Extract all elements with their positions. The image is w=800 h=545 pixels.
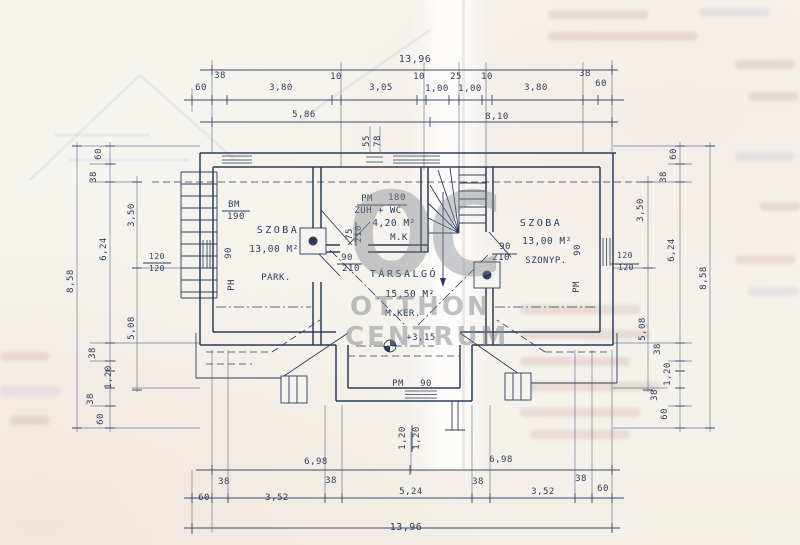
room-left-area: 13,00 M² bbox=[249, 244, 299, 255]
dim-label: 38 bbox=[88, 347, 98, 359]
dim-label: 60 bbox=[669, 148, 679, 160]
dim-label: 5,24 bbox=[399, 487, 423, 497]
room-left-name: SZOBA bbox=[257, 225, 300, 236]
dim-label: 90 bbox=[573, 244, 583, 256]
dim-label: 5,08 bbox=[127, 316, 137, 340]
door-size: 90 bbox=[499, 242, 511, 252]
dim-label: 1,20 bbox=[398, 426, 408, 450]
door-size: 90 bbox=[341, 253, 353, 263]
dim-label: 78 bbox=[373, 135, 383, 147]
dim-label: 3,50 bbox=[636, 198, 646, 222]
dim-label: 120 bbox=[149, 264, 165, 273]
dim-label: 3,80 bbox=[269, 83, 293, 93]
dim-label: 38 bbox=[579, 69, 591, 79]
dim-label: 60 bbox=[195, 83, 207, 93]
dim-label: 60 bbox=[96, 413, 106, 425]
dim-label: 38 bbox=[472, 477, 484, 487]
dim-label: 6,24 bbox=[99, 237, 109, 261]
dim-label: 38 bbox=[89, 171, 99, 183]
dim-label: 120 bbox=[617, 251, 633, 260]
dim-label: 60 bbox=[595, 79, 607, 89]
dim-right-overall: 8,58 bbox=[699, 266, 709, 290]
window-code: PM bbox=[392, 379, 404, 389]
dim-label: 3,52 bbox=[265, 493, 289, 503]
dim-label: 8,10 bbox=[485, 112, 509, 122]
dim-label: 55 bbox=[362, 135, 372, 147]
door-size: 210 bbox=[354, 225, 364, 243]
floor-plan-drawing: 13,9660383,80103,05101,00251,00103,80386… bbox=[0, 0, 800, 545]
dim-left-overall: 8,58 bbox=[66, 269, 76, 293]
room-left-floor: PARK. bbox=[261, 273, 291, 283]
window-code: PM bbox=[361, 194, 373, 204]
dim-label: 1,20 bbox=[663, 362, 673, 386]
bleed-through-sketch bbox=[30, 30, 430, 180]
dim-label: 3,52 bbox=[531, 487, 555, 497]
dim-label: 38 bbox=[214, 71, 226, 81]
room-right-floor: SZONYP. bbox=[525, 256, 566, 266]
dim-label: 10 bbox=[481, 72, 493, 82]
dim-label: 38 bbox=[653, 343, 663, 355]
dim-label: 60 bbox=[660, 408, 670, 420]
room-right-name: SZOBA bbox=[520, 218, 563, 229]
dim-label: 3,05 bbox=[369, 83, 393, 93]
dim-label: 6,98 bbox=[304, 457, 328, 467]
dim-label: 25 bbox=[450, 72, 462, 82]
window-size: 190 bbox=[227, 212, 245, 222]
window-code: BM bbox=[228, 200, 240, 210]
dim-label: 1,00 bbox=[425, 84, 449, 94]
dim-label: 3,80 bbox=[524, 83, 548, 93]
dim-label: 3,50 bbox=[127, 203, 137, 227]
room-lounge-name: TÁRSALGÓ bbox=[370, 267, 438, 280]
dim-label: 1,20 bbox=[412, 426, 422, 450]
dim-label: 90 bbox=[224, 247, 234, 259]
window-size: 90 bbox=[420, 379, 432, 389]
dim-label: 1,20 bbox=[104, 365, 114, 389]
dim-top-overall: 13,96 bbox=[399, 54, 432, 65]
window-size: 180 bbox=[388, 193, 406, 203]
dim-label: 38 bbox=[650, 389, 660, 401]
window-code: PH bbox=[227, 279, 237, 291]
room-lounge-area: 15,50 M² bbox=[385, 289, 435, 300]
room-bath-name: ZUH + WC bbox=[354, 206, 401, 216]
dim-label: 60 bbox=[597, 484, 609, 494]
dim-label: 5,08 bbox=[638, 317, 648, 341]
dim-label: 10 bbox=[413, 72, 425, 82]
room-lounge-floor: M.KER. bbox=[385, 309, 421, 319]
dim-label: 1,00 bbox=[458, 84, 482, 94]
dim-label: 120 bbox=[149, 252, 165, 261]
dim-bottom-overall: 13,96 bbox=[390, 522, 423, 533]
scanned-floor-plan-page: 13,9660383,80103,05101,00251,00103,80386… bbox=[0, 0, 800, 545]
dim-label: 38 bbox=[575, 474, 587, 484]
dim-label: 38 bbox=[86, 393, 96, 405]
dim-label: 120 bbox=[618, 263, 634, 272]
dim-label: 5,86 bbox=[292, 110, 316, 120]
window-code: PM bbox=[572, 281, 582, 293]
door-size: 210 bbox=[342, 264, 360, 274]
door-size: 210 bbox=[492, 253, 510, 263]
level-mark: +3,15 bbox=[406, 333, 436, 343]
dim-label: 38 bbox=[659, 171, 669, 183]
dim-label: 6,98 bbox=[489, 455, 513, 465]
dim-label: 38 bbox=[325, 476, 337, 486]
dim-label: 6,24 bbox=[667, 238, 677, 262]
dim-label: 38 bbox=[218, 477, 230, 487]
room-right-area: 13,00 M² bbox=[522, 236, 572, 247]
dim-label: 60 bbox=[198, 493, 210, 503]
room-bath-floor: M.K bbox=[390, 233, 408, 243]
room-bath-area: 4,20 M² bbox=[372, 218, 416, 229]
dim-label: 10 bbox=[330, 72, 342, 82]
dim-label: 60 bbox=[94, 148, 104, 160]
